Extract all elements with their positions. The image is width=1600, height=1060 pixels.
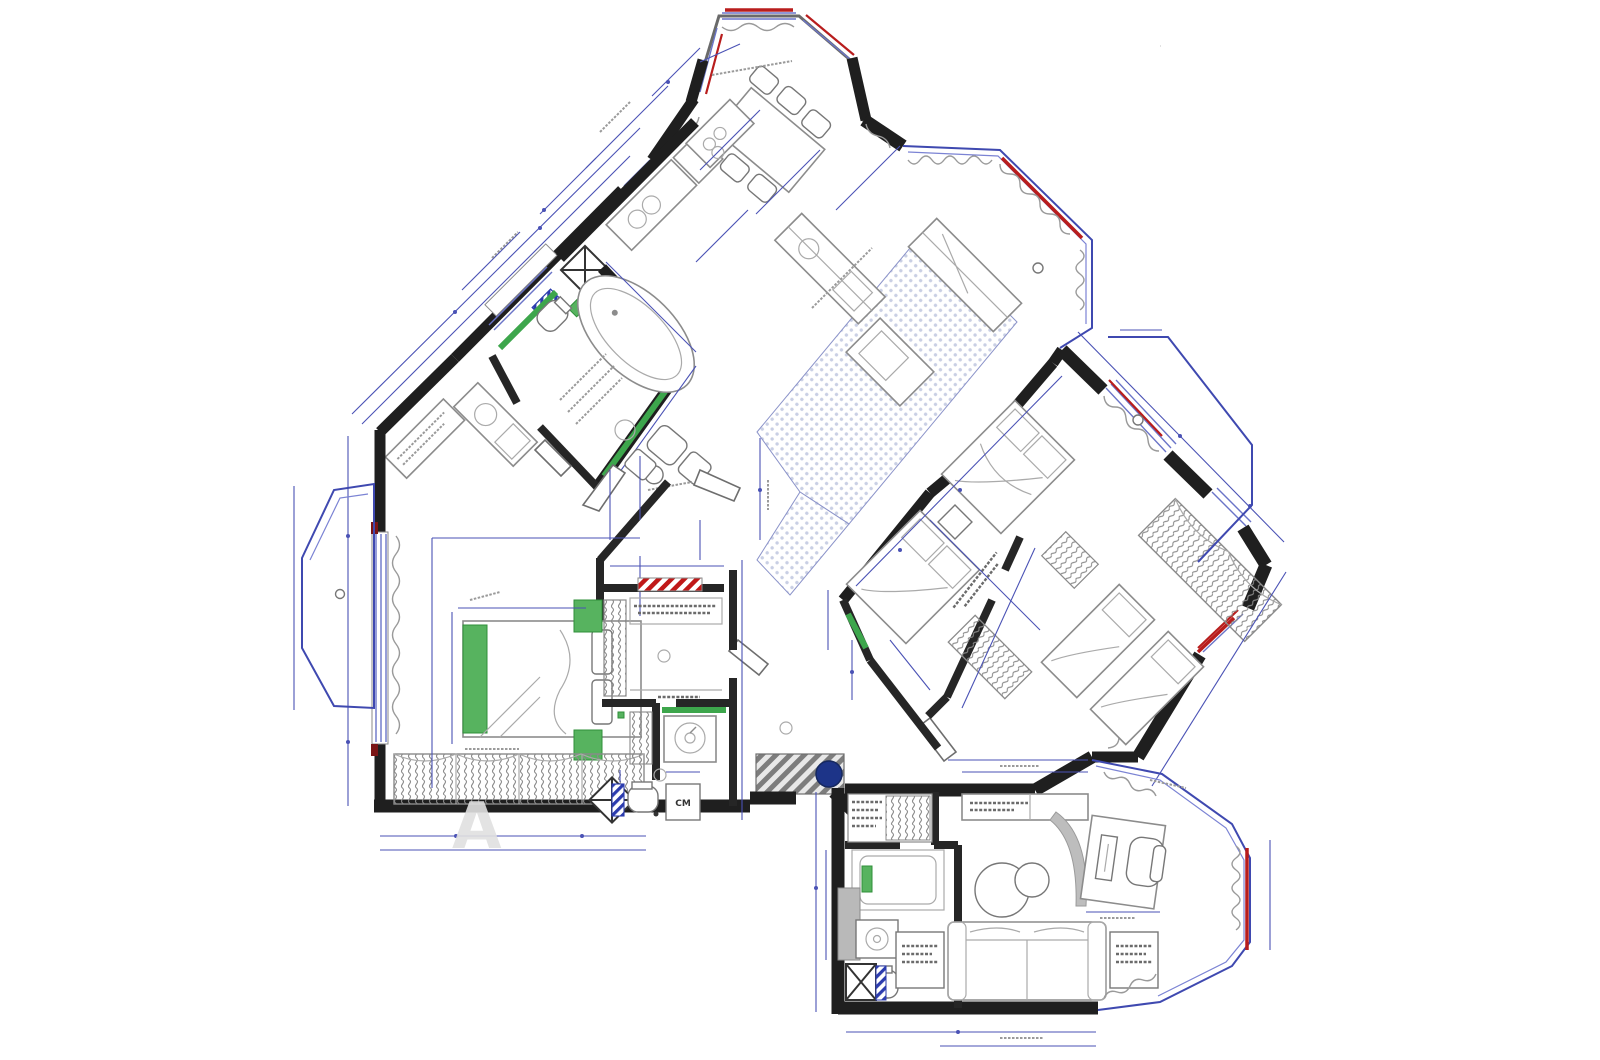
shaft-hatch-3 [876,966,886,1000]
washing-machine-label: СМ [675,799,691,809]
watermark-letter: А [452,790,502,864]
coffee-tables [975,863,1049,924]
office-chair [1125,836,1167,889]
washing-machine: СМ [666,784,700,820]
wardrobe-right-small [948,615,1031,698]
entry-closet [848,794,932,842]
shaft-hatch-2 [612,784,624,816]
hatch-strip-red [638,578,702,591]
side-table-left [896,932,944,988]
study-living [814,757,1167,1046]
sofa [948,922,1106,1000]
vanity [454,383,537,466]
balcony-left [294,484,374,710]
floor-plan-page: СМ [0,0,1600,1060]
console-cabinet [962,794,1088,820]
entry-column [816,761,842,787]
floor-plan-drawing: СМ [0,0,1600,1060]
